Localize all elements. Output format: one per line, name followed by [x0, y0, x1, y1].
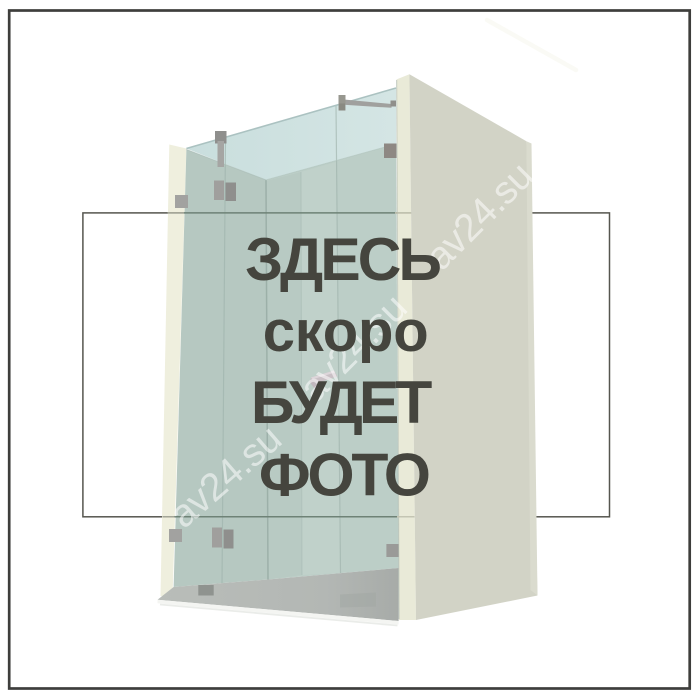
svg-text:ФОТО: ФОТО: [259, 441, 429, 509]
svg-text:скоро: скоро: [263, 299, 429, 364]
svg-text:БУДЕТ: БУДЕТ: [251, 368, 432, 436]
svg-text:ЗДЕСЬ: ЗДЕСЬ: [245, 225, 440, 293]
